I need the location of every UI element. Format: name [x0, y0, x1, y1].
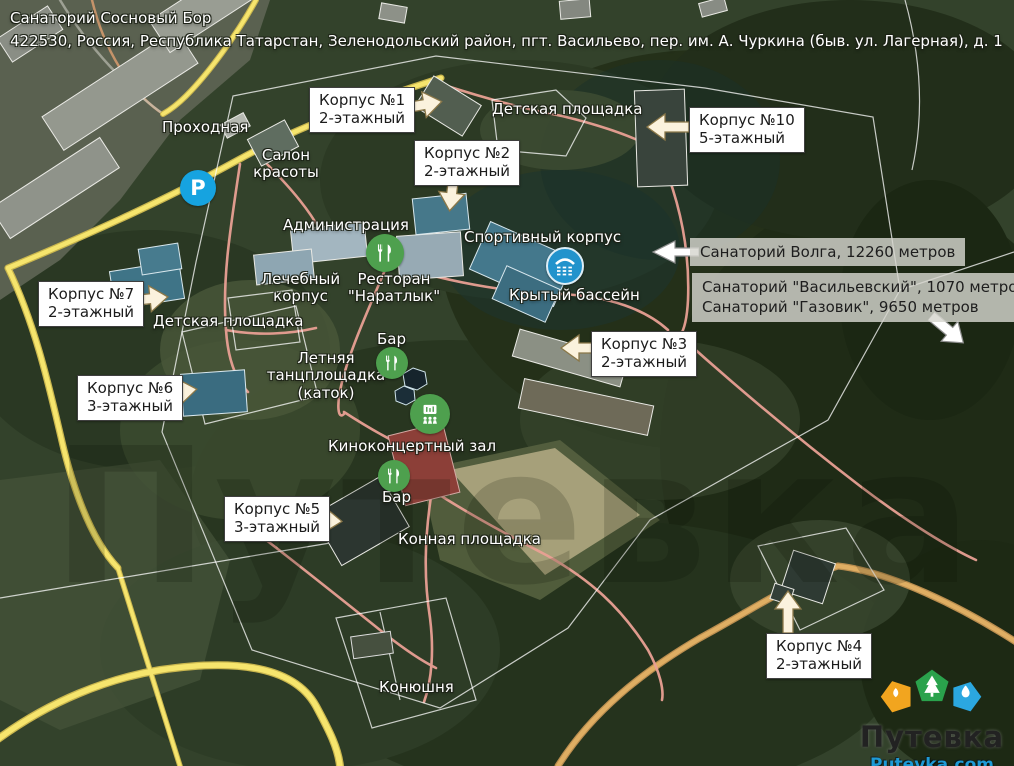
pool-glyph	[551, 252, 579, 280]
sanatorium-title: Санаторий Сосновый Бор	[10, 7, 1003, 30]
arrow-korpus-10	[645, 112, 689, 142]
label-bar-top: Бар	[377, 331, 406, 348]
callout-korpus-4-name: Корпус №4	[776, 637, 862, 655]
fork-knife-glyph	[372, 240, 398, 266]
infobox-vasilevsky-line: Санаторий "Васильевский", 1070 метров	[702, 277, 1014, 297]
label-playground-left: Детская площадка	[153, 313, 304, 330]
cinema-glyph	[416, 400, 444, 428]
callout-korpus-4-floors: 2-этажный	[776, 655, 862, 673]
label-beauty-salon: Салон красоты	[246, 147, 326, 182]
label-administration: Администрация	[283, 217, 409, 234]
callout-korpus-5-floors: 3-этажный	[234, 518, 320, 536]
callout-korpus-3: Корпус №3 2-этажный	[591, 331, 697, 377]
label-stable: Конюшня	[379, 679, 454, 696]
infobox-volga: Санаторий Волга, 12260 метров	[690, 238, 965, 266]
callout-korpus-7-floors: 2-этажный	[48, 303, 134, 321]
callout-korpus-10-floors: 5-этажный	[699, 129, 795, 147]
label-cinema-hall: Киноконцертный зал	[328, 438, 496, 455]
label-playground-top: Детская площадка	[492, 101, 643, 118]
label-horse-ground: Конная площадка	[398, 531, 541, 548]
arrow-korpus-4	[773, 589, 803, 633]
putevka-logo-pentagons	[872, 660, 992, 718]
cinema-icon	[410, 394, 450, 434]
parking-icon-letter: P	[190, 176, 205, 200]
callout-korpus-5-name: Корпус №5	[234, 500, 320, 518]
callout-korpus-5: Корпус №5 3-этажный	[224, 496, 330, 542]
callout-korpus-1: Корпус №1 2-этажный	[309, 87, 415, 133]
callout-korpus-6-name: Корпус №6	[87, 379, 173, 397]
bar-icon-top	[376, 347, 408, 379]
infobox-gazovik-line: Санаторий "Газовик", 9650 метров	[702, 297, 1014, 317]
sanatorium-map-page: Путевка Санаторий Сосновый Бор 422530, Р…	[0, 0, 1014, 766]
label-indoor-pool: Крытый бассейн	[509, 287, 640, 304]
parking-icon: P	[180, 170, 216, 206]
putevka-logo: Путевка Putevka.com	[853, 660, 1011, 766]
callout-korpus-3-name: Корпус №3	[601, 335, 687, 353]
label-dance-floor: Летняя танцплощадка (каток)	[266, 350, 386, 402]
infobox-vasilevsky-gazovik: Санаторий "Васильевский", 1070 метров Са…	[692, 273, 1014, 322]
callout-korpus-3-floors: 2-этажный	[601, 353, 687, 371]
callout-korpus-2-name: Корпус №2	[424, 144, 510, 162]
callout-korpus-10-name: Корпус №10	[699, 111, 795, 129]
callout-korpus-1-name: Корпус №1	[319, 91, 405, 109]
callout-korpus-2: Корпус №2 2-этажный	[414, 140, 520, 186]
callout-korpus-2-floors: 2-этажный	[424, 162, 510, 180]
fork-knife-glyph	[381, 352, 403, 374]
label-gatehouse: Проходная	[162, 119, 248, 136]
label-sports-building: Спортивный корпус	[464, 229, 621, 246]
pool-icon	[546, 247, 584, 285]
label-medical-building: Лечебный корпус	[258, 271, 343, 306]
label-restaurant-naratlyk: Ресторан "Наратлык"	[344, 271, 444, 306]
callout-korpus-7: Корпус №7 2-этажный	[38, 281, 144, 327]
fork-knife-glyph	[383, 465, 405, 487]
callout-korpus-6: Корпус №6 3-этажный	[77, 375, 183, 421]
restaurant-icon	[366, 234, 404, 272]
callout-korpus-7-name: Корпус №7	[48, 285, 134, 303]
sanatorium-address: 422530, Россия, Республика Татарстан, Зе…	[10, 30, 1003, 53]
callout-korpus-6-floors: 3-этажный	[87, 397, 173, 415]
putevka-logo-name: Путевка	[853, 722, 1011, 752]
bar-icon-bottom	[378, 460, 410, 492]
infobox-volga-text: Санаторий Волга, 12260 метров	[700, 242, 955, 262]
callout-korpus-1-floors: 2-этажный	[319, 109, 405, 127]
map-header: Санаторий Сосновый Бор 422530, Россия, Р…	[10, 7, 1003, 52]
putevka-site-link[interactable]: Putevka.com	[853, 755, 1011, 766]
callout-korpus-10: Корпус №10 5-этажный	[689, 107, 805, 153]
